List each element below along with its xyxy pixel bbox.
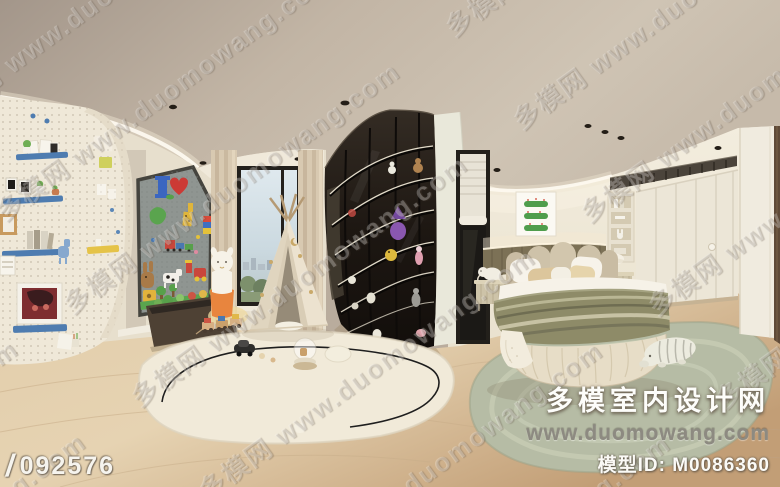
- recessed-light: [169, 105, 177, 109]
- model-id: 模型ID: M0086360: [598, 450, 770, 477]
- scene-number-value: 092576: [20, 454, 115, 479]
- roman-blind: [460, 154, 486, 224]
- pegboard-wall: [0, 96, 133, 364]
- wall-column: [740, 126, 774, 338]
- toy-display-cabinet: [325, 110, 466, 358]
- scene-number: / 092576: [6, 453, 115, 479]
- clear-jar: [94, 136, 102, 148]
- bed: [494, 277, 670, 387]
- small-toy: [293, 423, 307, 433]
- wood-frame: [0, 214, 17, 235]
- peg-hook: [31, 114, 36, 119]
- panorama-image: 多模网 www.duomowang.com多模网 www.duomowang.c…: [0, 0, 780, 487]
- lego-farmer: [185, 260, 192, 273]
- lego-parrot: [203, 216, 211, 234]
- model-id-label: 模型ID:: [598, 455, 666, 476]
- red-art-frame: [17, 283, 62, 324]
- scene-number-slash: /: [4, 453, 18, 479]
- alpaca-plush: [210, 246, 234, 318]
- storage-cube: [99, 157, 112, 168]
- crocodile-artwork: [516, 192, 556, 236]
- site-url: www.duomowang.com: [526, 422, 770, 446]
- floor-pouf: [325, 346, 351, 362]
- door-frame: [774, 126, 780, 344]
- paper-stack: [57, 333, 73, 350]
- potted-plant: [23, 140, 31, 153]
- wardrobe-knob: [709, 244, 716, 251]
- calendar: [0, 256, 15, 275]
- site-name: 多模室内设计网: [546, 379, 770, 418]
- model-id-value: M0086360: [672, 455, 770, 476]
- footer-branding: 多模室内设计网 www.duomowang.com 模型ID: M0086360: [526, 379, 770, 477]
- snow-globe: [293, 338, 317, 370]
